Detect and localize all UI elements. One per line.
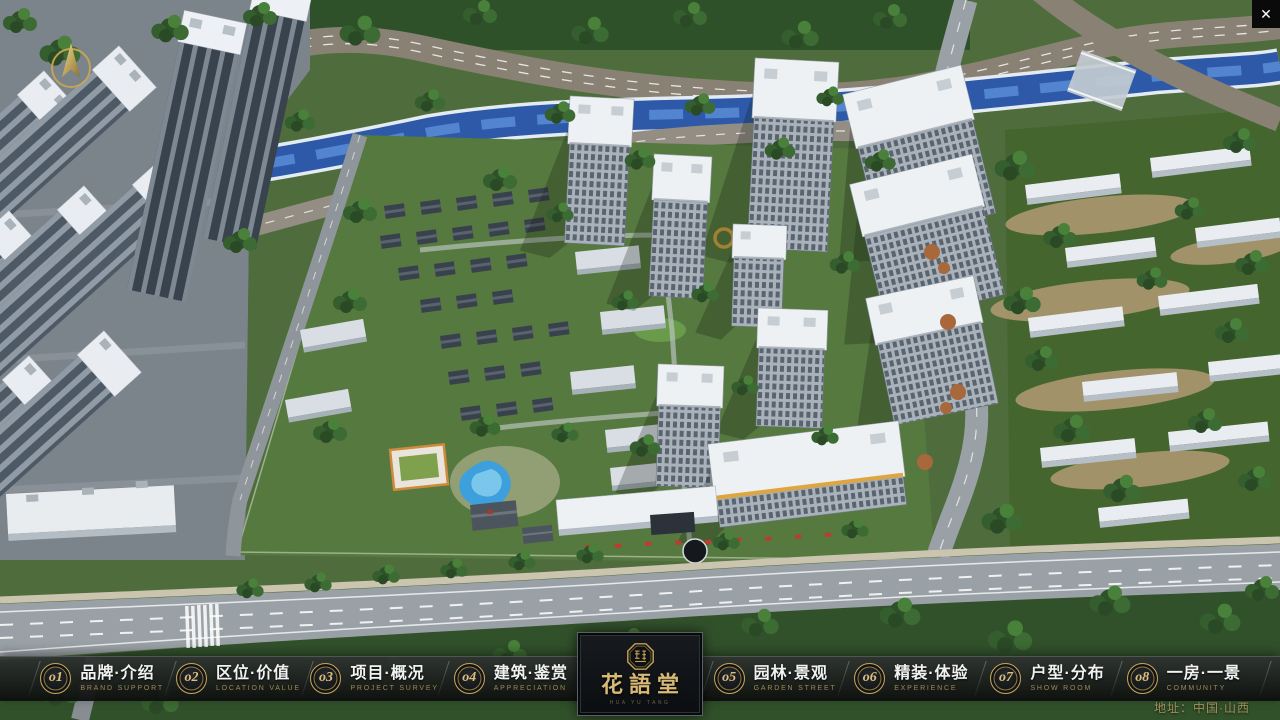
nav-label-en: PROJECT SURVEY — [350, 685, 438, 693]
nav-label-en: BRAND SUPPORT — [80, 685, 164, 693]
nav-badge: o6 — [854, 663, 885, 694]
nav-label-zh: 建筑·鉴赏 — [494, 665, 568, 682]
nav-badge: o5 — [714, 663, 745, 694]
nav-label-en: GARDEN STREET — [754, 685, 837, 693]
nav-group-left: o1 品牌·介绍 BRAND SUPPORT o2 区位·价值 LOCATION… — [0, 657, 579, 700]
nav-item-project-survey[interactable]: o3 项目·概况 PROJECT SURVEY — [307, 657, 443, 700]
nav-item-unit-distribution[interactable]: o7 户型·分布 SHOW ROOM — [980, 657, 1116, 700]
nav-badge: o8 — [1127, 663, 1158, 694]
nav-label-zh: 项目·概况 — [350, 665, 424, 682]
project-subtitle: HUA YU TANG — [610, 700, 671, 706]
nav-badge: o2 — [176, 663, 207, 694]
nav-item-room-view[interactable]: o8 一房·一景 COMMUNITY — [1116, 657, 1252, 700]
nav-label-en: COMMUNITY — [1167, 685, 1226, 693]
close-icon: ✕ — [1260, 6, 1272, 23]
nav-item-garden-landscape[interactable]: o5 园林·景观 GARDEN STREET — [707, 657, 843, 700]
nav-label-en: EXPERIENCE — [894, 685, 957, 693]
nav-label-zh: 精装·体验 — [894, 665, 968, 682]
nav-label-zh: 品牌·介绍 — [80, 665, 154, 682]
nav-badge: o3 — [310, 663, 341, 694]
close-button[interactable]: ✕ — [1252, 0, 1280, 28]
nav-label-en: LOCATION VALUE — [216, 685, 301, 693]
aerial-masterplan-render — [0, 0, 1280, 720]
project-address: 地址：中国·山西 — [1154, 699, 1250, 716]
nav-label-en: APPRECIATION — [494, 685, 567, 693]
nav-group-right: o5 园林·景观 GARDEN STREET o6 精装·体验 EXPERIEN… — [707, 657, 1280, 700]
nav-label-en: SHOW ROOM — [1030, 685, 1092, 693]
nav-label-zh: 区位·价值 — [216, 665, 290, 682]
project-title: 花語堂 — [595, 673, 685, 697]
nav-label-zh: 户型·分布 — [1030, 665, 1104, 682]
seal-icon — [626, 642, 655, 671]
sales-presentation-screen: ✕ o1 品牌·介绍 BRAND SUPPORT o2 区位·价值 LOCATI… — [0, 0, 1280, 720]
nav-label-zh: 园林·景观 — [754, 665, 828, 682]
nav-item-brand-intro[interactable]: o1 品牌·介绍 BRAND SUPPORT — [34, 657, 170, 700]
project-logo-panel[interactable]: 花語堂 HUA YU TANG — [577, 632, 703, 716]
nav-label-zh: 一房·一景 — [1167, 665, 1241, 682]
nav-item-architecture[interactable]: o4 建筑·鉴赏 APPRECIATION — [443, 657, 579, 700]
nav-item-decoration-experience[interactable]: o6 精装·体验 EXPERIENCE — [843, 657, 979, 700]
orange-building — [390, 444, 448, 489]
nav-badge: o7 — [990, 663, 1021, 694]
nav-item-location-value[interactable]: o2 区位·价值 LOCATION VALUE — [170, 657, 306, 700]
nav-badge: o4 — [454, 663, 485, 694]
nav-badge: o1 — [40, 663, 71, 694]
